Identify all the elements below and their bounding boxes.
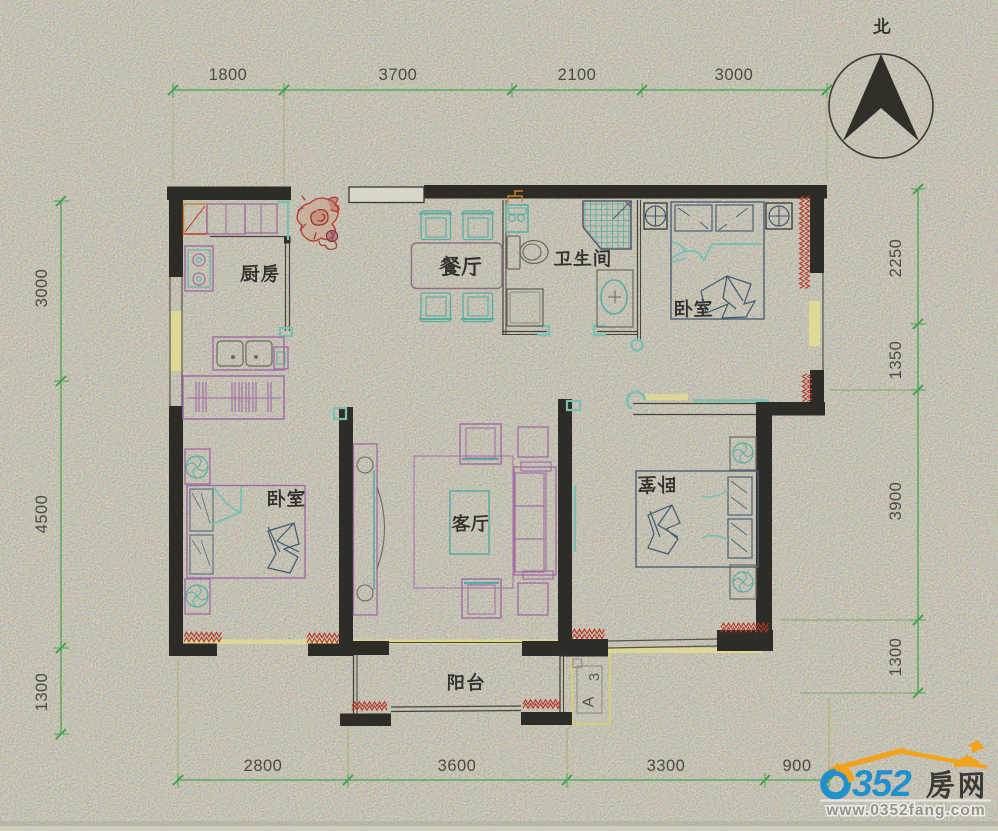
svg-text:A: A	[581, 696, 598, 707]
svg-text:2800: 2800	[244, 757, 283, 775]
svg-text:1300: 1300	[33, 673, 51, 712]
svg-text:1300: 1300	[887, 638, 905, 677]
svg-text:900: 900	[782, 757, 811, 775]
svg-text:1800: 1800	[209, 66, 248, 84]
svg-text:4500: 4500	[33, 495, 51, 534]
svg-text:www.0352fang.com: www.0352fang.com	[825, 802, 985, 819]
svg-text:2100: 2100	[558, 66, 597, 84]
svg-text:3: 3	[586, 673, 603, 681]
svg-text:3600: 3600	[438, 757, 477, 775]
svg-text:2250: 2250	[887, 239, 905, 278]
svg-text:3000: 3000	[33, 269, 51, 308]
svg-text:3300: 3300	[647, 757, 686, 775]
svg-text:3900: 3900	[887, 482, 905, 521]
svg-text:3700: 3700	[379, 66, 418, 84]
svg-text:1350: 1350	[887, 341, 905, 380]
svg-text:352: 352	[852, 763, 912, 804]
svg-text:3000: 3000	[715, 66, 754, 84]
